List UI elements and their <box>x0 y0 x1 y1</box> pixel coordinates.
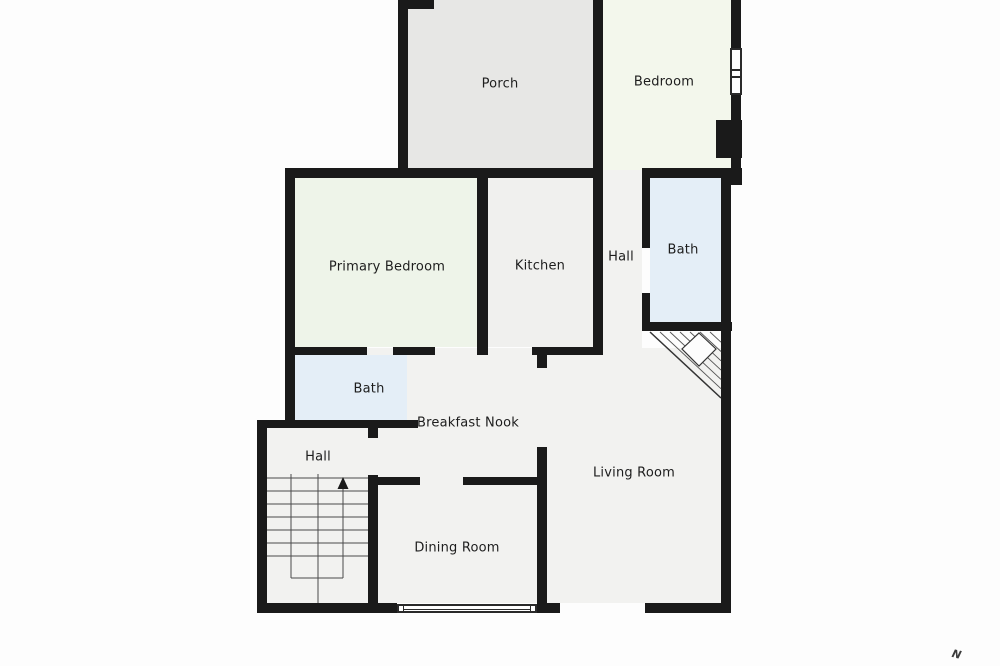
wall-dining-right <box>537 447 547 613</box>
room-label-hall-upper: Hall <box>608 250 634 265</box>
wall-primary-bottom-a <box>285 347 367 355</box>
wall-bath-lower-bottom <box>257 420 418 428</box>
wall-east-lower <box>721 177 731 613</box>
wall-stairhall-right-b <box>368 475 378 613</box>
dining-window <box>397 604 537 613</box>
wall-bottom-east <box>645 603 730 613</box>
wall-bath-upper-left-a <box>642 178 650 248</box>
room-label-kitchen: Kitchen <box>515 259 565 274</box>
wall-nook-dining-b <box>463 477 547 485</box>
window-pane-line <box>403 609 531 610</box>
chimney-block <box>716 120 742 158</box>
room-label-primary-bedroom: Primary Bedroom <box>329 260 445 275</box>
window-pane-line <box>732 69 740 71</box>
wall-center-divider <box>593 0 603 355</box>
room-label-living-room: Living Room <box>593 466 675 481</box>
wall-bath-upper-bottom <box>642 322 732 331</box>
room-label-breakfast-nook: Breakfast Nook <box>417 416 519 431</box>
compass-north: N <box>951 647 963 662</box>
room-label-porch: Porch <box>482 77 519 92</box>
room-label-bath-upper: Bath <box>667 243 698 258</box>
wall-primary-kitchen <box>477 178 488 355</box>
wall-bath-upper-left-b <box>642 293 650 330</box>
wall-west-upper <box>285 168 295 428</box>
room-label-bedroom: Bedroom <box>634 75 694 90</box>
wall-main-divider-west <box>285 168 603 178</box>
wall-bedroom-right-a <box>731 0 741 48</box>
wall-west-lower <box>257 420 267 613</box>
bedroom-window <box>730 48 742 95</box>
room-label-bath-lower: Bath <box>353 382 384 397</box>
room-label-dining-room: Dining Room <box>414 541 499 556</box>
room-fill-lower-area-b <box>267 428 721 603</box>
window-pane-line <box>732 76 740 78</box>
room-label-hall-lower: Hall <box>305 450 331 465</box>
wall-primary-bottom-b <box>393 347 435 355</box>
room-fill-bath-lower <box>295 355 407 420</box>
window-pane-line <box>530 606 531 611</box>
wall-stairhall-right-a <box>368 428 378 438</box>
floor-plan: Porch Bedroom Primary Bedroom Kitchen Ha… <box>0 0 1000 666</box>
wall-nook-living-stub <box>537 347 547 368</box>
window-pane-line <box>403 606 404 611</box>
wall-porch-left <box>398 0 408 178</box>
